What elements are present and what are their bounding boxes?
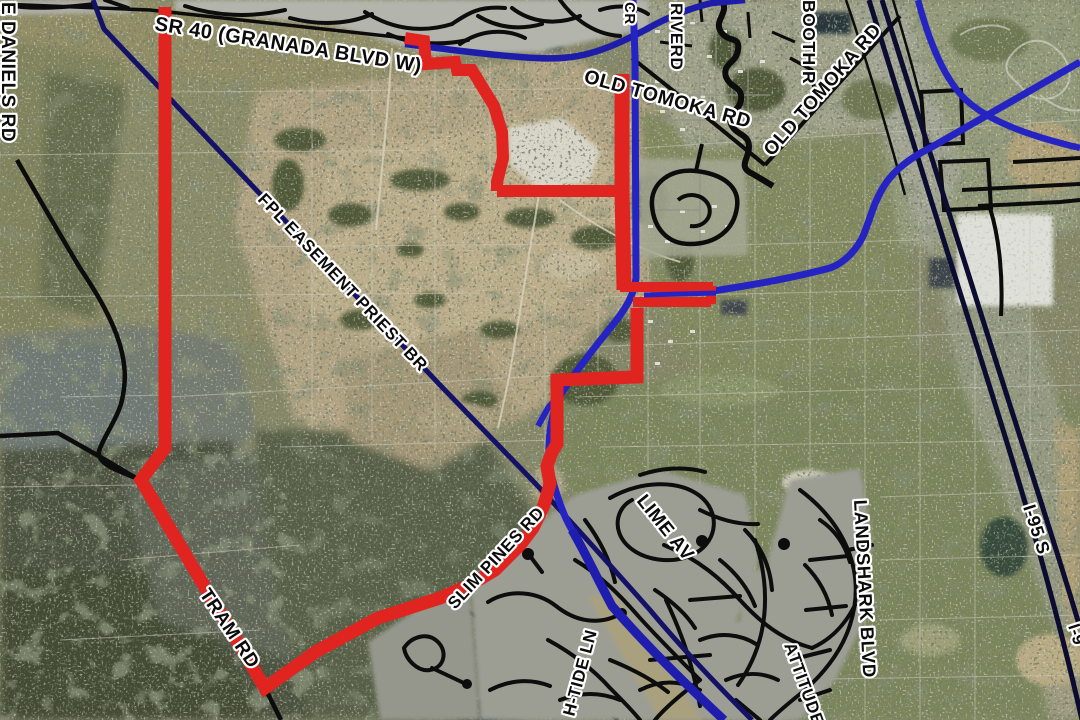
svg-text:E DANIELS RD: E DANIELS RD: [0, 2, 18, 142]
svg-text:RIVERD: RIVERD: [667, 3, 686, 70]
svg-text:CR: CR: [621, 2, 638, 25]
svg-text:BOOTH R: BOOTH R: [799, 0, 819, 84]
